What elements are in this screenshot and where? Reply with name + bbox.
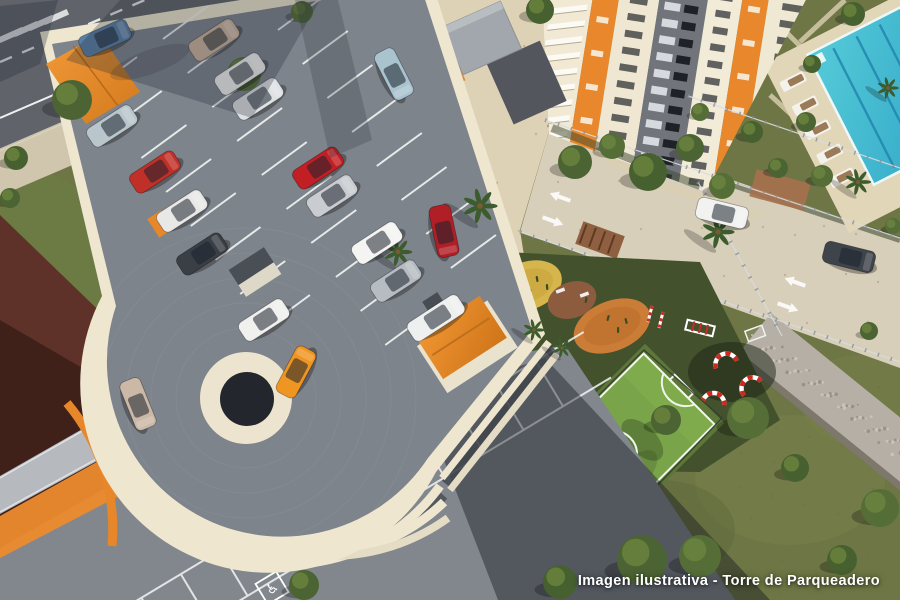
aerial-render: ♿ xyxy=(0,0,900,600)
image-caption: Imagen ilustrativa - Torre de Parqueader… xyxy=(578,573,880,589)
person xyxy=(617,327,619,333)
tree xyxy=(0,188,20,208)
scene-svg: ♿ xyxy=(0,0,900,600)
